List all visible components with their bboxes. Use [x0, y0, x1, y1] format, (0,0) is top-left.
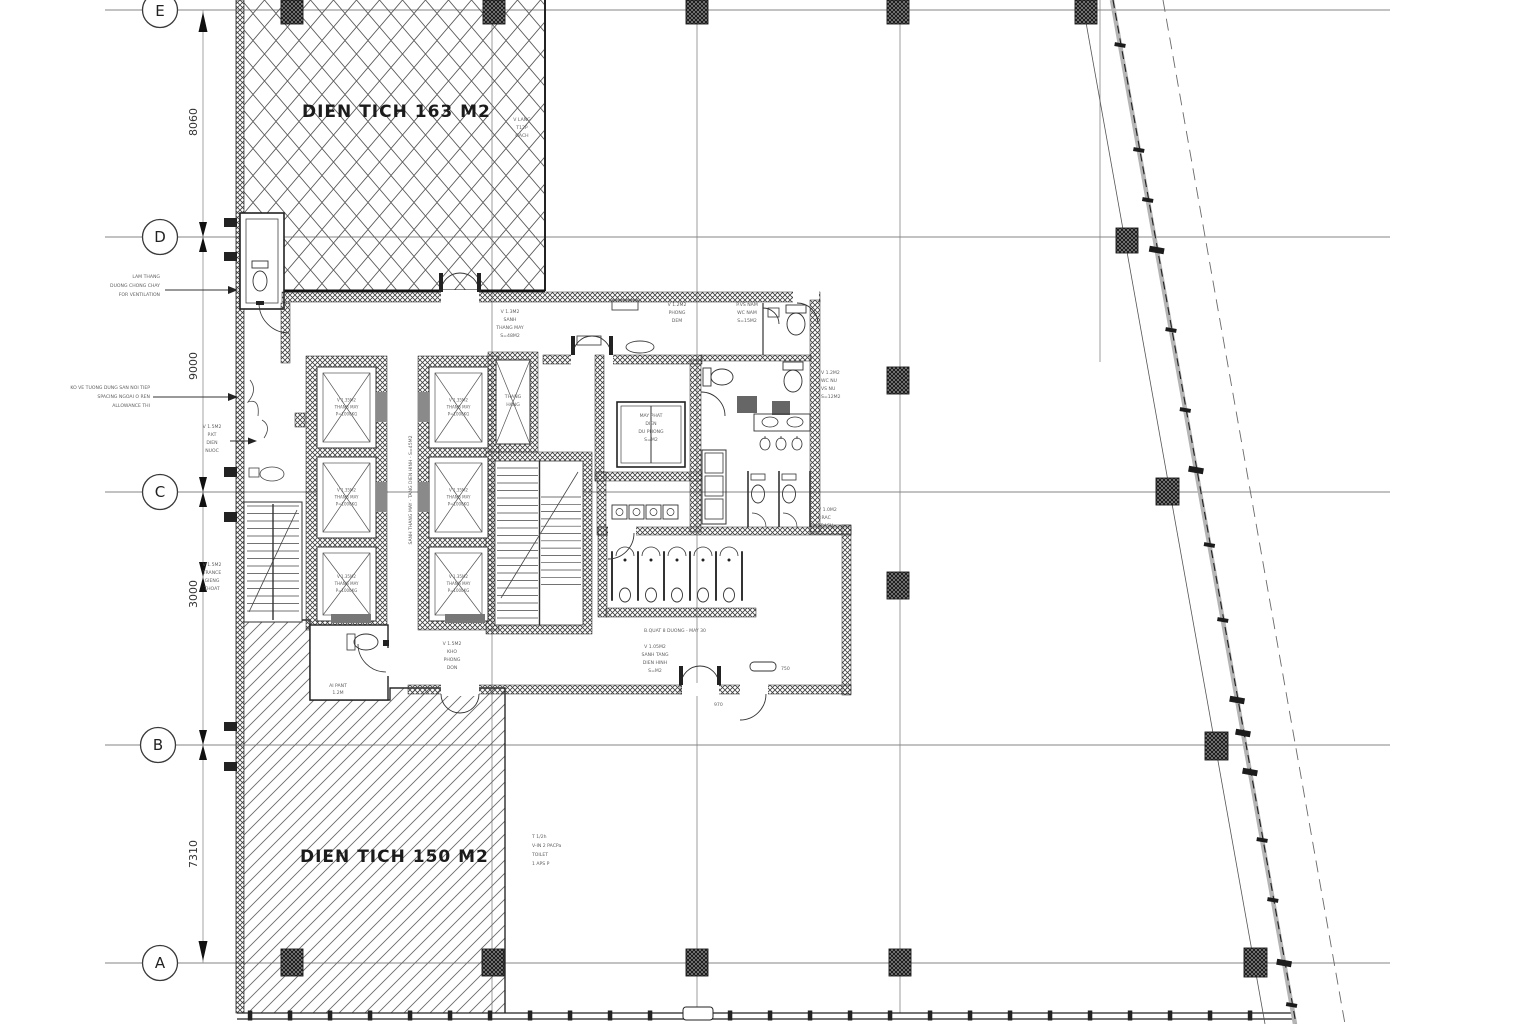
mullion-tick [408, 1011, 413, 1021]
boundary-tick-large [1149, 246, 1165, 255]
annotation-text: DUONG CHONG CHAY [110, 283, 160, 289]
annotation-text: MAY PHAT [640, 413, 663, 419]
annotation-text: V 1.2M2 [821, 370, 840, 376]
annotation-text: DON [447, 665, 458, 671]
annotation-text: TOILET [531, 852, 548, 858]
column [887, 367, 909, 394]
boundary-tick-large [1188, 466, 1204, 475]
floor-plan-page: 8060 9000 3000 7310 E D C B A DIEN TICH … [0, 0, 1536, 1024]
annotation-text: 970 [714, 702, 723, 708]
grid-label-b: B [153, 736, 163, 754]
dim-7310: 7310 [187, 840, 200, 868]
mullion-tick [728, 1011, 733, 1021]
cabin-label: P=1000KG [448, 588, 470, 593]
mullion-tick [568, 1011, 573, 1021]
annotation-text: T 1/2h [531, 834, 547, 840]
annotation-text: V 1.5M2 [203, 562, 222, 568]
area-163: DIEN TICH 163 M2 [244, 0, 545, 291]
cabin-label: P=1000KG [336, 412, 358, 417]
grid-bubbles: E D C B A [141, 0, 178, 981]
column [281, 0, 303, 24]
sink [629, 505, 644, 519]
cabin-label: P=1000KG [336, 588, 358, 593]
sink [646, 505, 661, 519]
mullion-tick [928, 1011, 933, 1021]
annotation-text: WC NU [821, 378, 837, 384]
cabin-label: V 1.35M2 [337, 398, 356, 403]
urinal [760, 436, 770, 450]
grid-label-a: A [155, 954, 166, 972]
store-room [310, 625, 391, 700]
annotation-text: 1.2M [332, 690, 343, 696]
sink [612, 505, 627, 519]
annotation-text: DIEN [645, 421, 656, 427]
column [483, 0, 505, 24]
annotation-text: V 1.5M2 [443, 641, 462, 647]
mullion-tick [528, 1011, 533, 1021]
annotation-text: V 1.3M2 [501, 309, 520, 315]
left-stair [244, 502, 302, 622]
annotation-text: V 1.0M2 [818, 507, 837, 513]
elevator-cabin: V 1.35M2THANG MAYP=1000KG [317, 457, 376, 538]
dim-3000: 3000 [187, 580, 200, 608]
mullion-tick [1128, 1011, 1133, 1021]
mullion-tick [968, 1011, 973, 1021]
annotation-text: PHONG [444, 657, 461, 663]
annotation-text: THANG MAY [495, 325, 524, 331]
column [281, 949, 303, 976]
column [482, 949, 504, 976]
annotation-text: V 1.5M2 [203, 424, 222, 430]
urinal [616, 547, 634, 602]
elevator-cabin: V 1.35M2THANG MAYP=1000KG [429, 457, 488, 538]
elevator-cabin: V 1.35M2THANG MAYP=1000KG [429, 547, 488, 621]
boundary-tick-large [1242, 768, 1258, 777]
cabin-label: THANG MAY [334, 405, 359, 410]
slanted-boundary [1082, 0, 1345, 1024]
annotation-text: 750 [781, 666, 790, 672]
annotation-text: NUOC [205, 448, 219, 454]
cabin-label: V 1.35M2 [449, 488, 468, 493]
dimension-line: 8060 9000 3000 7310 [187, 10, 208, 963]
annotation-text: V 1.05M2 [644, 644, 666, 650]
urinal [720, 547, 738, 602]
column [887, 572, 909, 599]
annotation-text: DIEN [206, 440, 217, 446]
mullion-tick [888, 1011, 893, 1021]
annotation-text: S=M2 [644, 437, 658, 443]
lobby-features [577, 300, 654, 353]
column [686, 949, 708, 976]
mullion-tick [488, 1011, 493, 1021]
annotation-text: SANH TANG [641, 652, 669, 658]
column [1205, 732, 1228, 760]
wc-bowl [784, 370, 802, 392]
upper-toilet [702, 303, 810, 527]
annotation-text: B.QUAT 8 DUONG - MAY 30 [644, 628, 706, 634]
grid-label-c: C [155, 483, 165, 501]
elevator-cabins: V 1.35M2THANG MAYP=1000KGV 1.35M2THANG M… [317, 367, 488, 621]
annotation-text: DIEN HINH [643, 660, 667, 666]
annotation-text: ALLOWANCE THI [112, 403, 150, 409]
annotation-text: P.VS NAM [736, 302, 758, 308]
annotation-text: V-IN 2 PACPa [532, 843, 561, 849]
wc-bowl [752, 485, 765, 503]
annotation-text: S=M2 [648, 668, 662, 674]
elevator-cabin: V 1.35M2THANG MAYP=1000KG [317, 367, 376, 448]
annotation-text: AI PANT [329, 683, 347, 689]
elevator-cabin: V 1.35M2THANG MAYP=1000KG [429, 367, 488, 448]
cabin-label: V 1.35M2 [337, 488, 356, 493]
grid-label-e: E [155, 2, 164, 20]
cabin-label: THANG MAY [446, 405, 471, 410]
stall-door-arc [783, 513, 797, 527]
mullion-tick [1168, 1011, 1173, 1021]
annotation-text: S=12M2 [821, 394, 841, 400]
annotation-text: SANH [503, 317, 516, 323]
stall-door-arc [752, 513, 766, 527]
mullion-tick [648, 1011, 653, 1021]
annotation-text: P.KT [208, 432, 217, 438]
dim-arrow-down [199, 941, 208, 961]
elevator-cabin: V 1.35M2THANG MAYP=1000KG [317, 547, 376, 621]
boundary-tick-large [1235, 729, 1251, 738]
column [889, 949, 911, 976]
boundary-tick-large [1276, 959, 1292, 968]
annotation-text: TRASH [817, 523, 833, 529]
annotation-text: THANG [504, 394, 522, 400]
dim-9000: 9000 [187, 352, 200, 380]
mullion-tick [608, 1011, 613, 1021]
wc-bowl [783, 485, 796, 503]
area-150-label: DIEN TICH 150 M2 [300, 847, 489, 867]
annotation-text: WC NAM [737, 310, 757, 316]
basin [787, 417, 803, 427]
area-163-label: DIEN TICH 163 M2 [302, 102, 491, 122]
annotation-text: GIENG [205, 578, 220, 584]
mullion-tick [1208, 1011, 1213, 1021]
cabin-label: THANG MAY [446, 495, 471, 500]
annotation-text: T12P [515, 125, 528, 131]
mullion-tick [288, 1011, 293, 1021]
annotation-text: SPACING NGOAI O REN [97, 394, 150, 400]
grid-label-d: D [154, 228, 166, 246]
annotation-text: TRANCE [202, 570, 222, 576]
wc-bowl [711, 369, 733, 385]
cabin-label: THANG MAY [334, 495, 359, 500]
annotation-text: P.RAC [818, 515, 831, 521]
annotation-text: HANG [506, 402, 520, 408]
dim-arrow-up [199, 12, 208, 32]
mullion-tick [328, 1011, 333, 1021]
annotation-text: VS NU [821, 386, 835, 392]
annotation-text: GACH [515, 133, 528, 139]
left-exterior-wall [224, 0, 244, 1013]
annotation-text: S=15M2 [737, 318, 757, 324]
basin [762, 417, 778, 427]
column [1116, 228, 1138, 253]
mullion-tick [1088, 1011, 1093, 1021]
annotation-text: THOAT [203, 586, 220, 592]
cabin-label: THANG MAY [446, 581, 471, 586]
annotation-text: V 1.2M2 [668, 302, 687, 308]
annotation-text: KHO [447, 649, 457, 655]
urinal [668, 547, 686, 602]
cabin-label: P=1000KG [448, 412, 470, 417]
annotation-text: SANH THANG MAY - TANG DIEN HINH - S=45M2 [408, 435, 414, 544]
mullion-tick [768, 1011, 773, 1021]
mullion-tick [1008, 1011, 1013, 1021]
mullion-tick [248, 1011, 253, 1021]
urinal [776, 436, 786, 450]
dim-8060: 8060 [187, 108, 200, 136]
floor-plan-svg: 8060 9000 3000 7310 E D C B A DIEN TICH … [0, 0, 1536, 1024]
shaft-fill [772, 401, 790, 415]
urinal [642, 547, 660, 602]
boundary-tick-large [1229, 696, 1245, 705]
mullion-tick [808, 1011, 813, 1021]
column [887, 0, 909, 24]
annotation-text: DU PHONG [638, 429, 664, 435]
cabin-label: P=1000KG [448, 502, 470, 507]
mullion-tick [1048, 1011, 1053, 1021]
column [1156, 478, 1179, 505]
annotation-text: DEM [672, 318, 682, 324]
annotation-text: V LANG [513, 117, 531, 123]
cabin-label: V 1.35M2 [449, 574, 468, 579]
column [1244, 948, 1267, 977]
cabin-label: V 1.35M2 [449, 398, 468, 403]
mullion-tick [1248, 1011, 1253, 1021]
cabin-label: THANG MAY [334, 581, 359, 586]
annotation-text: FOR VENTILATION [119, 292, 160, 298]
cabin-label: P=1000KG [336, 502, 358, 507]
small-toilet-room [240, 213, 284, 309]
shaft-fill [737, 396, 757, 413]
service-shaft [496, 360, 530, 444]
cabin-label: V 1.35M2 [337, 574, 356, 579]
core-stair [495, 461, 583, 625]
annotation-text: S=48M2 [500, 333, 520, 339]
sink [663, 505, 678, 519]
mullion-tick [448, 1011, 453, 1021]
annotation-text: PHONG [669, 310, 686, 316]
mullion-tick [368, 1011, 373, 1021]
column [1075, 0, 1097, 24]
mullion-tick [848, 1011, 853, 1021]
annotation-text: LAM THANG [132, 274, 160, 280]
wc-bowl [787, 313, 805, 335]
annotation-text: KO VE TUONG DUNG SAN NOI TIEP [70, 385, 150, 391]
annotation-text: 1 APS P [532, 861, 550, 867]
urinal [792, 436, 802, 450]
column [686, 0, 708, 24]
